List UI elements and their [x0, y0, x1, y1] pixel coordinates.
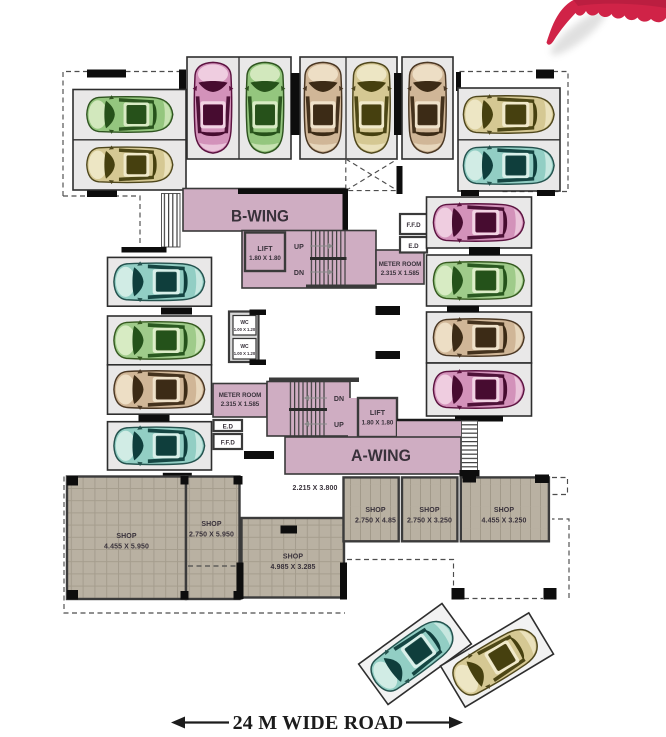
- svg-text:1.80 X 1.80: 1.80 X 1.80: [249, 255, 281, 262]
- svg-text:F.F.D: F.F.D: [406, 222, 421, 229]
- svg-text:2.215 X 3.800: 2.215 X 3.800: [293, 485, 338, 492]
- svg-text:WC: WC: [240, 320, 249, 326]
- svg-text:SHOP: SHOP: [283, 554, 303, 561]
- svg-text:1.00 X 1.20: 1.00 X 1.20: [234, 327, 256, 332]
- svg-text:F.F.D: F.F.D: [221, 440, 236, 447]
- svg-text:E.D: E.D: [408, 243, 419, 250]
- svg-text:UP: UP: [294, 244, 304, 251]
- svg-text:METER ROOM: METER ROOM: [379, 261, 422, 268]
- svg-text:WC: WC: [240, 344, 249, 350]
- svg-text:4.455 X 3.250: 4.455 X 3.250: [482, 518, 527, 525]
- svg-text:4.985 X 3.285: 4.985 X 3.285: [271, 564, 316, 571]
- svg-text:LIFT: LIFT: [257, 246, 273, 253]
- svg-text:DN: DN: [294, 270, 304, 277]
- svg-text:24 M WIDE ROAD: 24 M WIDE ROAD: [233, 712, 404, 734]
- svg-text:2.315 X 1.585: 2.315 X 1.585: [381, 270, 420, 277]
- svg-text:1.00 X 1.20: 1.00 X 1.20: [234, 351, 256, 356]
- svg-text:2.315 X 1.585: 2.315 X 1.585: [221, 401, 260, 408]
- svg-text:E.D: E.D: [223, 424, 234, 431]
- svg-text:SHOP: SHOP: [494, 507, 514, 514]
- svg-text:A-WING: A-WING: [351, 446, 411, 465]
- svg-text:LIFT: LIFT: [370, 410, 386, 417]
- svg-text:B-WING: B-WING: [231, 207, 289, 226]
- svg-text:4.455 X 5.950: 4.455 X 5.950: [104, 544, 149, 551]
- svg-text:2.750 X 3.250: 2.750 X 3.250: [407, 518, 452, 525]
- svg-text:2.750 X 4.85: 2.750 X 4.85: [355, 518, 396, 525]
- svg-text:DN: DN: [334, 396, 344, 403]
- svg-text:SHOP: SHOP: [365, 507, 385, 514]
- svg-text:METER ROOM: METER ROOM: [219, 392, 262, 399]
- svg-text:SHOP: SHOP: [116, 533, 136, 540]
- svg-text:UP: UP: [334, 422, 344, 429]
- svg-text:2.750 X 5.950: 2.750 X 5.950: [189, 532, 234, 539]
- svg-text:SHOP: SHOP: [201, 521, 221, 528]
- svg-text:SHOP: SHOP: [419, 507, 439, 514]
- svg-text:1.80 X 1.80: 1.80 X 1.80: [362, 420, 394, 427]
